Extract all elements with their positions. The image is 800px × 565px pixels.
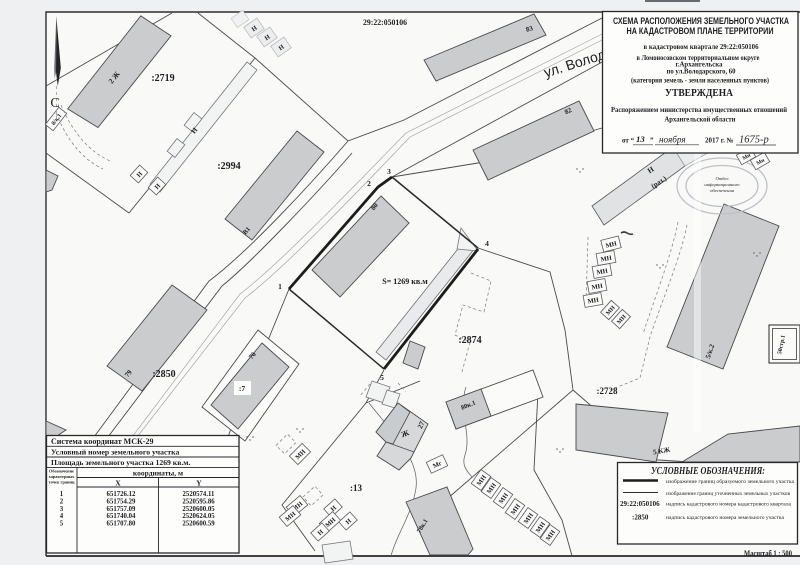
svg-text:изображение границ уточненных: изображение границ уточненных земельных … <box>666 490 791 497</box>
svg-text:2: 2 <box>60 498 64 505</box>
svg-text:2: 2 <box>367 179 371 188</box>
svg-text:X: X <box>115 479 121 488</box>
svg-text:1: 1 <box>278 282 282 291</box>
svg-text::2994: :2994 <box>217 161 240 172</box>
svg-text:4: 4 <box>60 513 64 520</box>
svg-text::7: :7 <box>239 384 245 393</box>
svg-text::2850: :2850 <box>152 369 175 380</box>
svg-text:в кадастровом квартале 29:22:0: в кадастровом квартале 29:22:050106 <box>644 42 759 51</box>
svg-text:обеспечения: обеспечения <box>710 188 734 193</box>
svg-text::13: :13 <box>350 483 362 493</box>
svg-text:29:22:050106: 29:22:050106 <box>363 18 407 27</box>
svg-text:координаты, м: координаты, м <box>133 469 183 478</box>
svg-text:13: 13 <box>636 134 645 144</box>
svg-text:СХЕМА РАСПОЛОЖЕНИЯ ЗЕМЕЛЬНОГО: СХЕМА РАСПОЛОЖЕНИЯ ЗЕМЕЛЬНОГО УЧАСТКА <box>613 16 789 27</box>
svg-text:651757.09: 651757.09 <box>107 506 136 513</box>
svg-text:УСЛОВНЫЕ ОБОЗНАЧЕНИЯ:: УСЛОВНЫЕ ОБОЗНАЧЕНИЯ: <box>651 466 765 477</box>
svg-text:4: 4 <box>485 239 489 248</box>
svg-text:Y: Y <box>196 479 202 488</box>
svg-text:УТВЕРЖДЕНА: УТВЕРЖДЕНА <box>665 87 733 99</box>
svg-text:2520624.05: 2520624.05 <box>182 513 215 520</box>
svg-text:2017 г. №: 2017 г. № <box>705 137 734 145</box>
svg-text:2520600.05: 2520600.05 <box>182 506 215 513</box>
svg-text:2520600.59: 2520600.59 <box>182 521 215 528</box>
svg-text:НА КАДАСТРОВОМ ПЛАНЕ ТЕРРИТОРИ: НА КАДАСТРОВОМ ПЛАНЕ ТЕРРИТОРИИ <box>627 26 774 37</box>
svg-text:Обозначение: Обозначение <box>49 469 74 474</box>
svg-text:Площадь земельного участка 126: Площадь земельного участка 1269 кв.м. <box>51 458 191 467</box>
svg-text:Масштаб 1 : 500: Масштаб 1 : 500 <box>744 548 792 558</box>
svg-text:5: 5 <box>60 521 64 528</box>
svg-text:по ул.Володарского, 60: по ул.Володарского, 60 <box>667 68 737 75</box>
svg-text:651726.12: 651726.12 <box>107 491 136 498</box>
svg-text::2719: :2719 <box>151 73 174 84</box>
svg-text:ноября: ноября <box>659 135 686 145</box>
svg-text:3: 3 <box>387 167 391 176</box>
svg-text:2520574.11: 2520574.11 <box>183 491 216 498</box>
svg-text:от “: от “ <box>622 137 635 145</box>
svg-text:С: С <box>50 96 59 111</box>
svg-text:характерных: характерных <box>49 474 75 479</box>
svg-text:Система координат МСК-29: Система координат МСК-29 <box>51 437 153 446</box>
svg-text:29:22:050106: 29:22:050106 <box>620 500 660 508</box>
svg-text:изображение границ образуемого: изображение границ образуемого земельног… <box>666 478 795 485</box>
svg-text:надпись кадастрового номера ка: надпись кадастрового номера кадастрового… <box>666 502 792 508</box>
svg-text:S= 1269 кв.м: S= 1269 кв.м <box>382 277 428 286</box>
svg-text:3: 3 <box>60 506 64 513</box>
svg-text:5: 5 <box>380 373 384 382</box>
svg-text:1: 1 <box>60 491 64 498</box>
svg-text:Архангельской области: Архангельской области <box>665 115 736 123</box>
svg-text:Условный номер земельного учас: Условный номер земельного участка <box>51 448 179 457</box>
svg-text::2728: :2728 <box>597 386 618 396</box>
svg-text:1675-р: 1675-р <box>739 135 769 146</box>
svg-text:”: ” <box>650 137 654 145</box>
svg-text::2874: :2874 <box>458 335 481 346</box>
svg-text:651707.80: 651707.80 <box>107 521 136 528</box>
svg-text:Распоряжением министерства иму: Распоряжением министерства имущественных… <box>611 106 787 114</box>
svg-text::2850: :2850 <box>632 514 649 522</box>
svg-text:Отдел: Отдел <box>716 176 729 181</box>
svg-text:надпись кадастрового номера зе: надпись кадастрового номера земельного у… <box>666 515 785 521</box>
svg-text:651754.29: 651754.29 <box>107 498 136 505</box>
svg-text:651740.04: 651740.04 <box>107 513 136 520</box>
svg-text:точек границ: точек границ <box>49 480 75 485</box>
svg-text:информационного: информационного <box>704 182 740 187</box>
svg-text:(категория земель - земли насе: (категория земель - земли населенных пун… <box>631 78 769 85</box>
svg-text:2520595.86: 2520595.86 <box>182 498 215 505</box>
